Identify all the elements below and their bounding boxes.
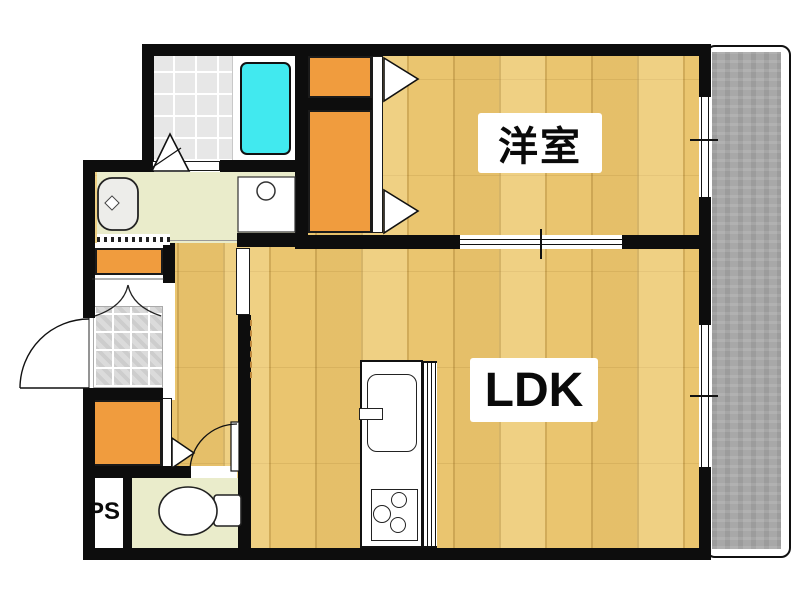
wall-right-c <box>699 467 711 560</box>
stove-burner-left <box>373 505 391 523</box>
hall-closet-door <box>162 398 172 470</box>
western-closet-door <box>372 56 383 233</box>
kitchen-counter-hatch <box>423 361 437 548</box>
ldk-label: LDK <box>470 358 598 422</box>
floor-plan: 洋室 LDK PS <box>0 0 800 600</box>
sliding-door-tick <box>540 229 542 259</box>
wall-closet-divider <box>308 98 372 110</box>
bathroom-door-threshold <box>152 161 220 171</box>
balcony <box>712 52 781 549</box>
wall-bottom <box>83 548 711 560</box>
kitchen-faucet <box>359 408 383 420</box>
window-western-frame-1 <box>701 97 702 197</box>
wall-bath-bottom-right <box>220 160 307 172</box>
pipe-space-label: PS <box>88 496 126 528</box>
ldk-entry-door <box>236 248 250 315</box>
western-closet-lower <box>308 110 372 233</box>
western-room-text: 洋室 <box>498 114 582 172</box>
washroom-opening-line <box>170 240 237 241</box>
washroom-sliding-door-dots <box>97 237 170 242</box>
wall-shoe-stub <box>163 243 175 283</box>
exterior-area <box>0 0 142 161</box>
wall-top <box>142 44 711 56</box>
western-closet-upper <box>308 56 372 98</box>
shoe-cabinet <box>95 248 163 275</box>
ldk-door-dashed-track <box>250 320 252 378</box>
window-western-tick <box>690 139 718 141</box>
window-ldk-tick <box>690 395 718 397</box>
stove-burner-top <box>391 492 407 508</box>
genkan-tile <box>93 306 163 388</box>
entrance-door-swing-icon <box>20 316 89 390</box>
shower-tile-floor <box>150 52 233 162</box>
wall-toilet-top <box>83 466 191 478</box>
hall-closet <box>91 400 162 466</box>
wall-west-ldk-left <box>295 235 460 249</box>
western-room-label: 洋室 <box>478 113 602 173</box>
stove-burner-bottom <box>390 517 406 533</box>
wall-bath-left <box>142 44 154 172</box>
toilet-room-floor <box>132 478 238 548</box>
wall-bath-west-sep <box>295 44 308 248</box>
wall-genkan-bottom <box>83 388 163 400</box>
wall-right-b <box>699 197 711 325</box>
wall-west-ldk-right <box>622 235 711 249</box>
pipe-space-text: PS <box>88 498 120 525</box>
ldk-text: LDK <box>485 363 584 418</box>
bathtub <box>240 62 291 155</box>
wall-right-a <box>699 44 711 97</box>
window-western-frame-2 <box>708 97 709 197</box>
wall-left-upper <box>83 160 95 318</box>
toilet-door-opening <box>191 466 237 478</box>
